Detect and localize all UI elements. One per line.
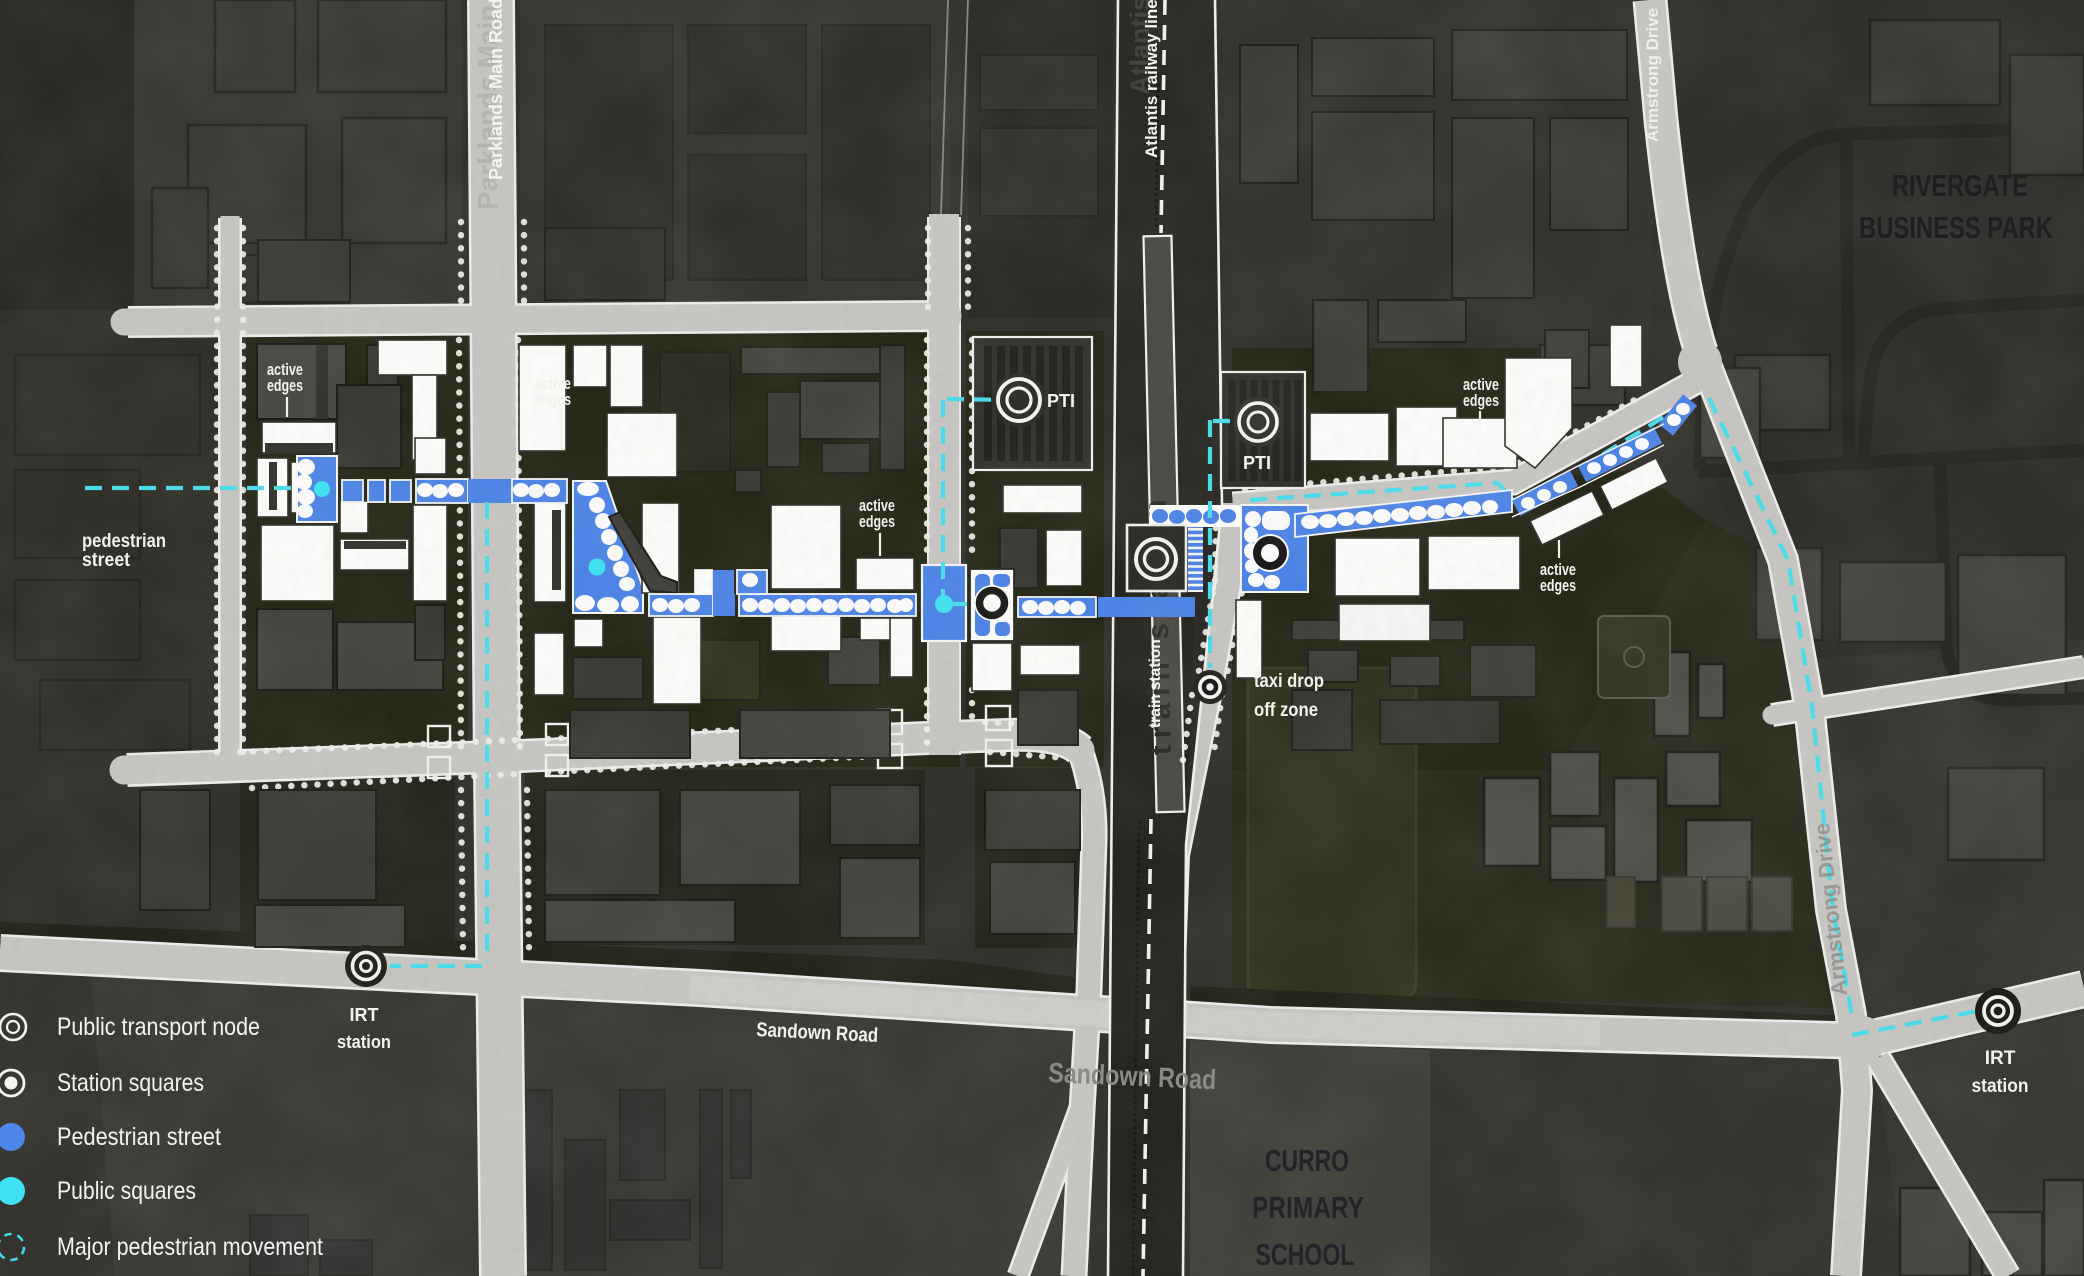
svg-text:PTI: PTI: [1243, 453, 1271, 473]
svg-text:Armstrong Drive: Armstrong Drive: [1643, 8, 1662, 142]
svg-text:station: station: [1972, 1076, 2029, 1097]
svg-text:Public transport node: Public transport node: [57, 1013, 260, 1041]
svg-text:IRT: IRT: [1985, 1048, 2016, 1069]
svg-text:Major pedestrian movement: Major pedestrian movement: [57, 1233, 323, 1261]
svg-text:RIVERGATE: RIVERGATE: [1892, 168, 2028, 203]
svg-text:Station squares: Station squares: [57, 1069, 204, 1097]
svg-text:edges: edges: [267, 377, 303, 395]
svg-text:train station: train station: [1147, 639, 1164, 728]
svg-text:street: street: [82, 550, 131, 571]
svg-text:SCHOOL: SCHOOL: [1256, 1237, 1355, 1272]
svg-text:Atlantis railway line: Atlantis railway line: [1142, 0, 1161, 158]
svg-text:edges: edges: [535, 391, 571, 409]
svg-text:taxi drop: taxi drop: [1254, 671, 1324, 692]
svg-text:station: station: [337, 1032, 391, 1052]
svg-text:PTI: PTI: [1047, 391, 1075, 411]
svg-text:CURRO: CURRO: [1265, 1143, 1349, 1178]
svg-text:edges: edges: [1540, 577, 1576, 595]
svg-text:edges: edges: [859, 513, 895, 531]
svg-text:Pedestrian street: Pedestrian street: [57, 1123, 221, 1151]
svg-text:PRIMARY: PRIMARY: [1252, 1190, 1364, 1225]
svg-text:Parklands Main Road: Parklands Main Road: [486, 0, 506, 180]
svg-text:edges: edges: [1463, 392, 1499, 410]
svg-text:BUSINESS PARK: BUSINESS PARK: [1859, 210, 2053, 245]
svg-text:Public squares: Public squares: [57, 1177, 196, 1205]
svg-text:IRT: IRT: [350, 1005, 379, 1025]
svg-text:pedestrian: pedestrian: [82, 531, 166, 552]
svg-text:off zone: off zone: [1254, 700, 1318, 721]
